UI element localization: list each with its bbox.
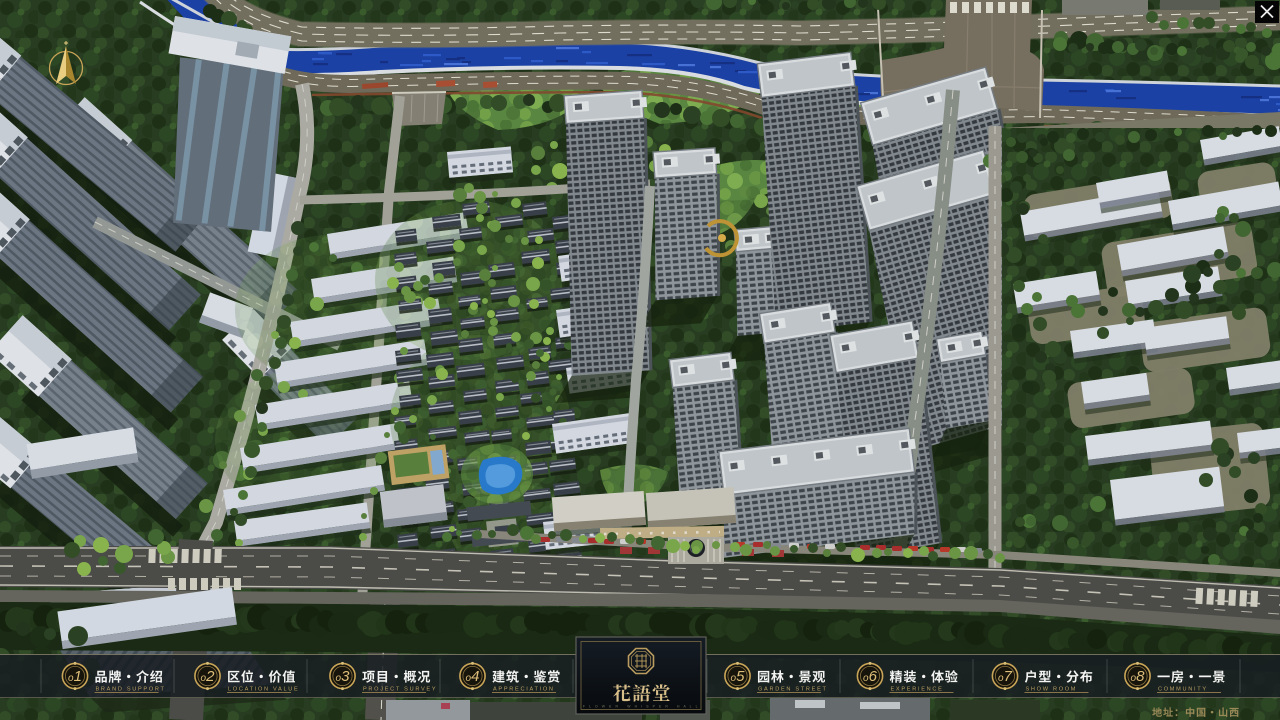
svg-text:COMMUNITY: COMMUNITY (1158, 687, 1208, 693)
svg-text:BRAND SUPPORT: BRAND SUPPORT (96, 687, 166, 693)
svg-text:GARDEN STREET: GARDEN STREET (758, 687, 828, 693)
svg-text:APPRECIATION: APPRECIATION (493, 687, 555, 693)
svg-text:SHOW ROOM: SHOW ROOM (1026, 687, 1078, 693)
svg-text:EXPERIENCE: EXPERIENCE (891, 687, 944, 693)
svg-text:LOCATION VALUE: LOCATION VALUE (228, 687, 299, 693)
svg-text:PROJECT SURVEY: PROJECT SURVEY (363, 687, 437, 693)
svg-text:F L O W E R W H I S P E R: F L O W E R W H I S P E R H A L L (583, 705, 699, 709)
